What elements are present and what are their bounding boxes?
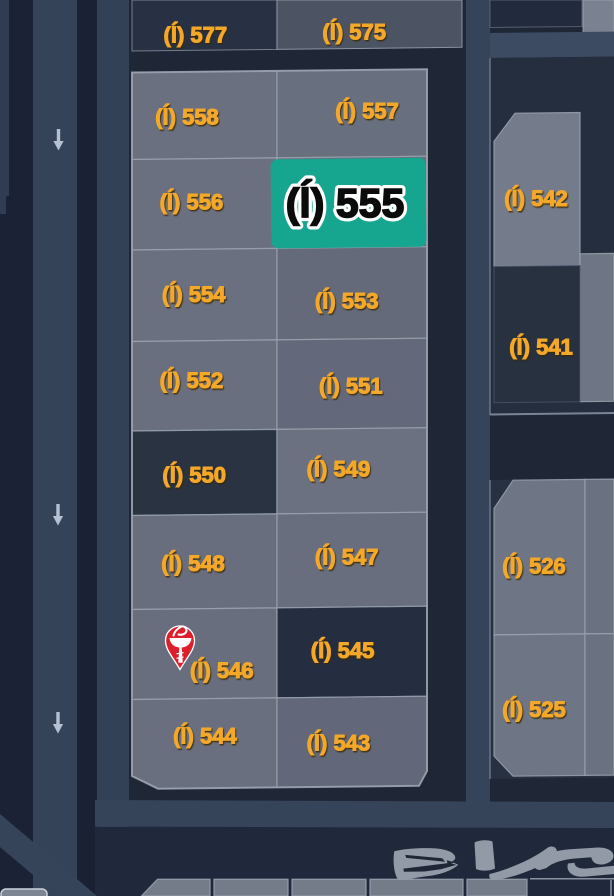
svg-text:(ĺ) 526: (ĺ) 526 <box>502 553 566 579</box>
svg-text:(ĺ) 543: (ĺ) 543 <box>307 730 371 756</box>
svg-text:(ĺ) 546: (ĺ) 546 <box>190 657 254 683</box>
svg-text:(ĺ) 525: (ĺ) 525 <box>502 696 566 722</box>
svg-text:(ĺ) 547: (ĺ) 547 <box>315 544 379 570</box>
svg-text:(ĺ) 549: (ĺ) 549 <box>307 456 371 482</box>
svg-text:(ĺ) 575: (ĺ) 575 <box>322 19 386 45</box>
svg-text:(ĺ) 554: (ĺ) 554 <box>162 281 226 307</box>
svg-text:(ĺ) 550: (ĺ) 550 <box>162 462 226 488</box>
svg-text:(ĺ) 548: (ĺ) 548 <box>161 550 225 576</box>
svg-text:(ĺ) 552: (ĺ) 552 <box>160 367 224 393</box>
svg-text:(ĺ) 542: (ĺ) 542 <box>504 185 568 211</box>
svg-text:(ĺ) 558: (ĺ) 558 <box>155 104 219 130</box>
svg-text:(ĺ) 541: (ĺ) 541 <box>509 334 573 360</box>
svg-text:(ĺ) 557: (ĺ) 557 <box>335 98 399 124</box>
svg-text:(ĺ) 556: (ĺ) 556 <box>160 189 224 215</box>
svg-text:(ĺ) 555: (ĺ) 555 <box>286 179 405 226</box>
svg-text:(ĺ) 544: (ĺ) 544 <box>173 723 237 749</box>
svg-text:(ĺ) 545: (ĺ) 545 <box>311 637 375 663</box>
svg-text:(ĺ) 553: (ĺ) 553 <box>315 288 379 314</box>
svg-text:(ĺ) 577: (ĺ) 577 <box>164 21 228 47</box>
svg-text:(ĺ) 551: (ĺ) 551 <box>319 373 383 399</box>
